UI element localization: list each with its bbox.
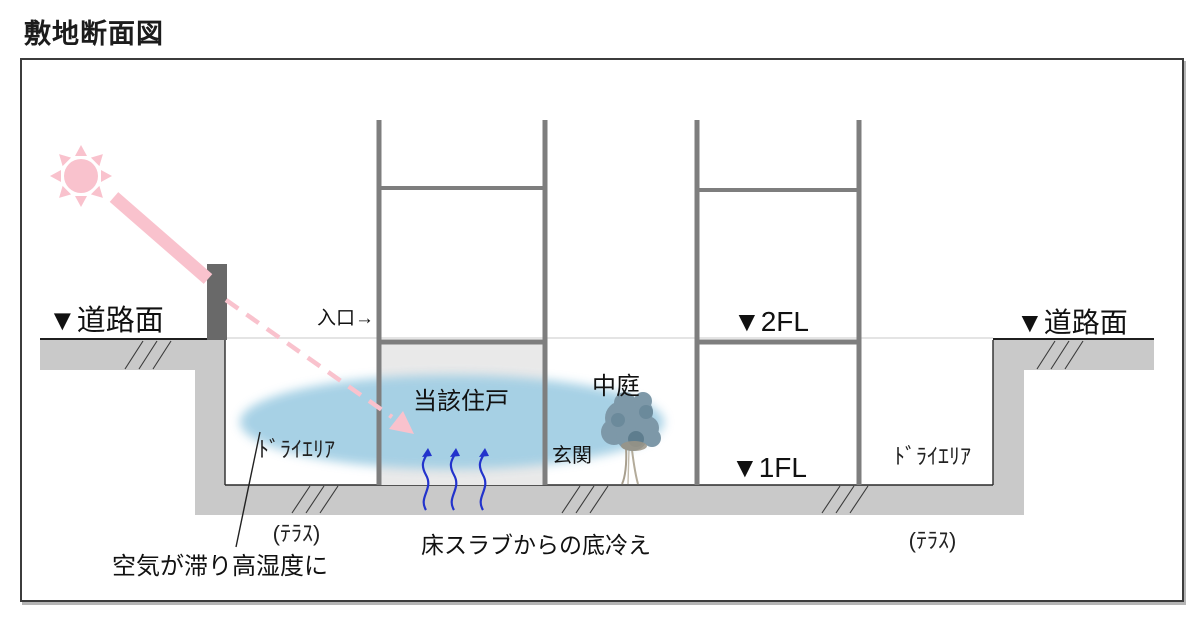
page-title: 敷地断面図 bbox=[24, 12, 164, 51]
door-label: 玄関 bbox=[552, 439, 592, 468]
dry-area-right-line2: (ﾃﾗｽ) bbox=[865, 527, 1000, 555]
ground-left-band bbox=[40, 339, 197, 370]
road-surface-label-right: ▼道路面 bbox=[1016, 301, 1128, 341]
sun-icon bbox=[50, 145, 112, 207]
courtyard-label: 中庭 bbox=[592, 366, 640, 401]
sun-beam bbox=[114, 197, 208, 279]
dry-area-label-right: ﾄﾞﾗｲｴﾘｱ (ﾃﾗｽ) bbox=[865, 387, 1000, 611]
building-b bbox=[697, 120, 859, 485]
slab-chill-note: 床スラブからの底冷え bbox=[421, 526, 651, 560]
ground-right-band bbox=[993, 339, 1154, 370]
entrance-label: 入口→ bbox=[317, 303, 374, 330]
road-surface-label-left: ▼道路面 bbox=[48, 297, 164, 339]
subject-unit-label: 当該住戸 bbox=[413, 381, 509, 416]
humidity-note: 空気が滞り高湿度に bbox=[112, 546, 328, 581]
diagram-frame: ▼道路面 ▼道路面 入口→ 当該住戸 中庭 玄関 ﾄﾞﾗｲｴﾘｱ (ﾃﾗｽ) ﾄ… bbox=[20, 58, 1184, 602]
level-1fl-label: ▼1FL bbox=[731, 452, 807, 484]
section-drawing bbox=[22, 60, 1182, 600]
dry-area-left-line1: ﾄﾞﾗｲｴﾘｱ bbox=[229, 436, 364, 464]
level-2fl-label: ▼2FL bbox=[733, 306, 809, 338]
dry-area-left-line2: (ﾃﾗｽ) bbox=[229, 520, 364, 548]
dry-area-right-line1: ﾄﾞﾗｲｴﾘｱ bbox=[865, 443, 1000, 471]
